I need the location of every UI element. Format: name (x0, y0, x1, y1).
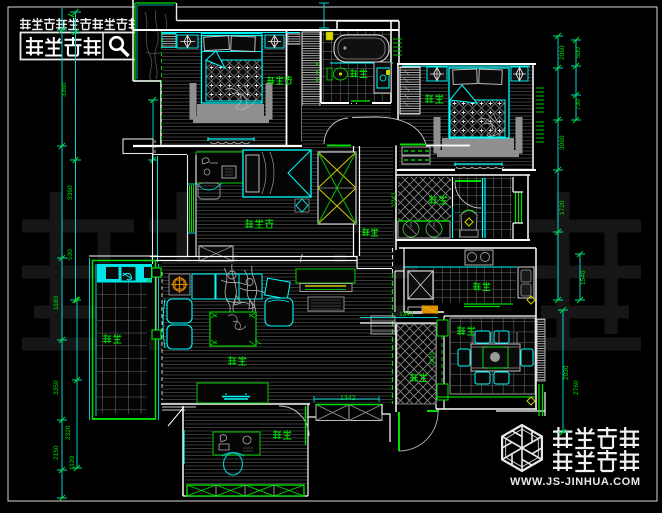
svg-text:3350: 3350 (53, 380, 60, 395)
svg-text:500: 500 (575, 47, 582, 58)
svg-text:2320: 2320 (65, 425, 72, 440)
svg-text:1120: 1120 (69, 456, 76, 470)
svg-text:530: 530 (67, 249, 74, 260)
svg-text:2410: 2410 (429, 351, 436, 366)
svg-text:2060: 2060 (559, 45, 566, 60)
svg-text:1343: 1343 (399, 311, 414, 318)
svg-text:2150: 2150 (53, 445, 60, 460)
svg-text:1540: 1540 (580, 270, 587, 285)
svg-text:1243: 1243 (391, 192, 398, 207)
svg-text:3360: 3360 (61, 82, 68, 97)
svg-text:2030: 2030 (563, 365, 570, 380)
svg-text:WWW.JS-JINHUA.COM: WWW.JS-JINHUA.COM (510, 476, 641, 488)
svg-text:1180: 1180 (53, 296, 60, 310)
svg-text:730: 730 (575, 99, 582, 110)
svg-text:2760: 2760 (573, 380, 580, 395)
svg-text:3960: 3960 (559, 135, 566, 150)
svg-text:1720: 1720 (559, 200, 566, 215)
svg-text:3360: 3360 (67, 185, 74, 200)
